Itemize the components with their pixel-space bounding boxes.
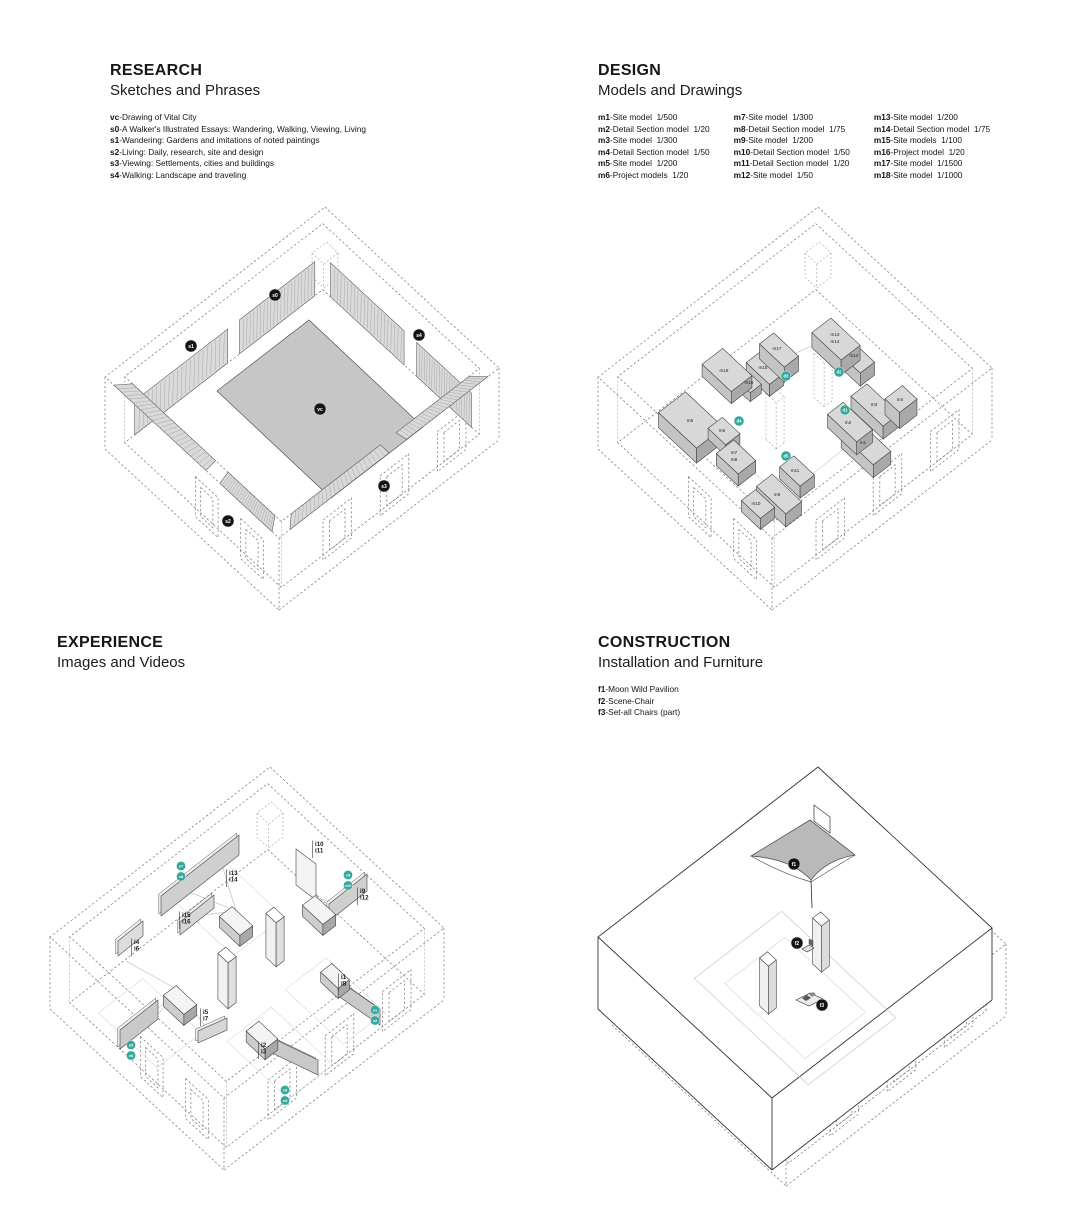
- legend-item: s1-Wandering: Gardens and imitations of …: [110, 135, 366, 147]
- legend-item: f1-Moon Wild Pavilion: [598, 684, 680, 696]
- block-label-m4: m4: [897, 397, 904, 402]
- wall-opening-inner: [146, 1048, 158, 1088]
- drawing-marker-d2-label: d2: [837, 370, 843, 375]
- wall-opening-inner: [739, 529, 751, 569]
- wall-opening: [734, 519, 757, 580]
- research-legend: vc-Drawing of Vital Citys0-A Walker's Il…: [110, 112, 366, 182]
- video-marker-v6-label: v6: [129, 1053, 134, 1058]
- drawing-marker-d3-label: d3: [784, 374, 790, 379]
- cluster-link: [810, 448, 845, 476]
- callout-s1-label: s1: [188, 344, 194, 350]
- legend-key: s0: [110, 124, 119, 134]
- block-label-m5: m5: [687, 418, 694, 423]
- callout-s2-label: s2: [225, 519, 231, 525]
- wall-opening: [323, 498, 352, 560]
- screen-panel: [296, 849, 316, 900]
- column: [821, 920, 829, 972]
- block-label-m3: m3: [871, 402, 878, 407]
- block-label-m7: m7: [731, 450, 738, 455]
- video-marker-v3-label: v3: [283, 1087, 288, 1092]
- legend-item: s0-A Walker's Illustrated Essays: Wander…: [110, 124, 366, 136]
- image-label-i14: i14: [229, 877, 238, 884]
- design-header: DESIGN Models and Drawings: [598, 62, 742, 99]
- callout-f3-label: f3: [820, 1003, 825, 1009]
- design-axonometric-diagram: m1m2m3m4m5m6m7m8m9m10m11m12m13m14m15m16m…: [578, 193, 1028, 663]
- legend-key: m11: [734, 158, 750, 168]
- wall-opening: [930, 410, 959, 472]
- design-legend-column: m13-Site model 1/200m14-Detail Section m…: [874, 112, 990, 182]
- legend-item: m11-Detail Section model 1/20: [734, 158, 850, 170]
- callout-s0-label: s0: [272, 293, 278, 299]
- legend-item: m6-Project models 1/20: [598, 170, 710, 182]
- callout-f2-label: f2: [795, 941, 800, 947]
- design-subtitle: Models and Drawings: [598, 82, 742, 99]
- block-label-m15: m15: [759, 365, 768, 370]
- construction-legend: f1-Moon Wild Pavilionf2-Scene-Chairf3-Se…: [598, 684, 680, 719]
- legend-item: m5-Site model 1/200: [598, 158, 710, 170]
- image-label-i12: i12: [360, 895, 369, 902]
- legend-key: s2: [110, 147, 119, 157]
- legend-item: m17-Site model 1/1500: [874, 158, 990, 170]
- video-marker-v5-label: v5: [129, 1042, 134, 1047]
- legend-item: s4-Walking: Landscape and traveling: [110, 170, 366, 182]
- video-marker-v10-label: v10: [345, 883, 352, 888]
- legend-key: m4: [598, 147, 610, 157]
- legend-key: s4: [110, 170, 119, 180]
- block-label-m18: m18: [720, 368, 729, 373]
- legend-item: m15-Site models 1/100: [874, 135, 990, 147]
- image-label-i16: i16: [182, 919, 191, 926]
- column: [768, 960, 776, 1014]
- image-label-i3: i3: [261, 1049, 267, 1056]
- block-label-m1: m1: [860, 440, 867, 445]
- legend-key: m15: [874, 135, 891, 145]
- drawing-marker-d5-label: d5: [784, 454, 790, 459]
- block-label-m11: m11: [791, 468, 800, 473]
- legend-item: m9-Site model 1/200: [734, 135, 850, 147]
- design-legend: m1-Site model 1/500m2-Detail Section mod…: [598, 112, 990, 182]
- legend-item: m3-Site model 1/300: [598, 135, 710, 147]
- legend-key: vc: [110, 112, 119, 122]
- wall-opening-inner: [694, 488, 706, 528]
- legend-item: m2-Detail Section model 1/20: [598, 124, 710, 136]
- legend-key: m12: [734, 170, 751, 180]
- design-legend-column: m7-Site model 1/300m8-Detail Section mod…: [734, 112, 850, 182]
- wall-opening-inner: [191, 1089, 203, 1129]
- image-label-i7: i7: [203, 1016, 209, 1023]
- block-label-m6: m6: [719, 428, 726, 433]
- wall-opening: [816, 498, 845, 560]
- video-marker-v8-label: v8: [179, 874, 184, 879]
- legend-key: m5: [598, 158, 610, 168]
- column: [760, 958, 769, 1014]
- column: [276, 917, 284, 967]
- legend-key: m17: [874, 158, 891, 168]
- block-label-m9: m9: [774, 492, 781, 497]
- image-label-i6: i6: [134, 946, 140, 953]
- video-marker-v7-label: v7: [179, 863, 184, 868]
- room-silhouette: [598, 767, 992, 1170]
- video-marker-v1-label: v1: [373, 1007, 378, 1012]
- legend-key: m7: [734, 112, 746, 122]
- drawing-marker-d4-label: d4: [737, 419, 743, 424]
- legend-item: f2-Scene-Chair: [598, 696, 680, 708]
- column: [228, 957, 236, 1009]
- legend-key: m13: [874, 112, 891, 122]
- design-title: DESIGN: [598, 62, 742, 80]
- legend-item: s3-Viewing: Settlements, cities and buil…: [110, 158, 366, 170]
- column-outline: [312, 242, 338, 264]
- experience-axonometric-diagram: i13i14i15i16i10i11i9i12i1i8i4i6i5i7i2i3v…: [30, 753, 480, 1223]
- floor-outline: [70, 850, 425, 1148]
- block-label-m12: m12: [850, 353, 859, 358]
- legend-item: m14-Detail Section model 1/75: [874, 124, 990, 136]
- wall-opening-inner: [246, 529, 258, 569]
- block-label-m14: m14: [831, 339, 840, 344]
- legend-key: m2: [598, 124, 610, 134]
- legend-key: m18: [874, 170, 891, 180]
- column-outline: [805, 242, 831, 264]
- wall-opening: [382, 970, 411, 1032]
- legend-item: m12-Site model 1/50: [734, 170, 850, 182]
- legend-key: m6: [598, 170, 610, 180]
- column: [813, 918, 822, 972]
- legend-key: f3: [598, 707, 605, 717]
- model-plinth-blocks: [659, 318, 918, 529]
- callout-s4-label: s4: [416, 333, 422, 339]
- exhibition-axonometric-plan-page: RESEARCH Sketches and Phrases vc-Drawing…: [0, 0, 1080, 1226]
- legend-item: m1-Site model 1/500: [598, 112, 710, 124]
- screen: [118, 921, 143, 956]
- wall-opening: [186, 1079, 209, 1140]
- block-label-m8: m8: [731, 457, 738, 462]
- research-subtitle: Sketches and Phrases: [110, 82, 260, 99]
- callout-vc-label: vc: [317, 407, 323, 413]
- legend-item: m8-Detail Section model 1/75: [734, 124, 850, 136]
- wall-opening: [325, 1014, 354, 1076]
- wall-opening: [689, 477, 712, 538]
- legend-item: m7-Site model 1/300: [734, 112, 850, 124]
- legend-item: m13-Site model 1/200: [874, 112, 990, 124]
- wall-opening: [141, 1037, 164, 1098]
- legend-item: s2-Living: Daily, research, site and des…: [110, 147, 366, 159]
- construction-axonometric-diagram: f1f2f3: [578, 753, 1028, 1223]
- column-outline: [257, 802, 283, 824]
- wall-opening: [437, 410, 466, 472]
- legend-key: s3: [110, 158, 119, 168]
- legend-key: f1: [598, 684, 605, 694]
- wall-opening: [241, 519, 264, 580]
- legend-item: m4-Detail Section model 1/50: [598, 147, 710, 159]
- image-label-i11: i11: [315, 848, 324, 855]
- legend-item: f3-Set-all Chairs (part): [598, 707, 680, 719]
- block-label-m2: m2: [845, 420, 852, 425]
- legend-key: m8: [734, 124, 746, 134]
- legend-item: vc-Drawing of Vital City: [110, 112, 366, 124]
- block-label-m10: m10: [752, 501, 761, 506]
- video-marker-v9-label: v9: [346, 872, 351, 877]
- video-marker-v4-label: v4: [283, 1098, 288, 1103]
- legend-item: m16-Project model 1/20: [874, 147, 990, 159]
- design-legend-column: m1-Site model 1/500m2-Detail Section mod…: [598, 112, 710, 182]
- wall-opening: [196, 477, 219, 538]
- callout-s3-label: s3: [381, 484, 387, 490]
- legend-key: f2: [598, 696, 605, 706]
- block-label-m17: m17: [773, 346, 782, 351]
- legend-item: m18-Site model 1/1000: [874, 170, 990, 182]
- drawing-marker-d1-label: d1: [843, 408, 849, 413]
- legend-key: m14: [874, 124, 891, 134]
- block-label-m16: m16: [745, 380, 754, 385]
- legend-item: m10-Detail Section model 1/50: [734, 147, 850, 159]
- legend-key: s1: [110, 135, 119, 145]
- wall-opening-inner: [201, 488, 213, 528]
- callout-f1-label: f1: [792, 862, 797, 868]
- legend-key: m16: [874, 147, 891, 157]
- block-label-m13: m13: [831, 332, 840, 337]
- image-label-i8: i8: [341, 981, 347, 988]
- research-header: RESEARCH Sketches and Phrases: [110, 62, 260, 99]
- legend-key: m3: [598, 135, 610, 145]
- legend-key: m9: [734, 135, 746, 145]
- legend-key: m10: [734, 147, 751, 157]
- research-title: RESEARCH: [110, 62, 260, 80]
- legend-key: m1: [598, 112, 610, 122]
- video-marker-v2-label: v2: [373, 1018, 378, 1023]
- research-axonometric-diagram: s0s1s2s3s4vc: [85, 193, 535, 663]
